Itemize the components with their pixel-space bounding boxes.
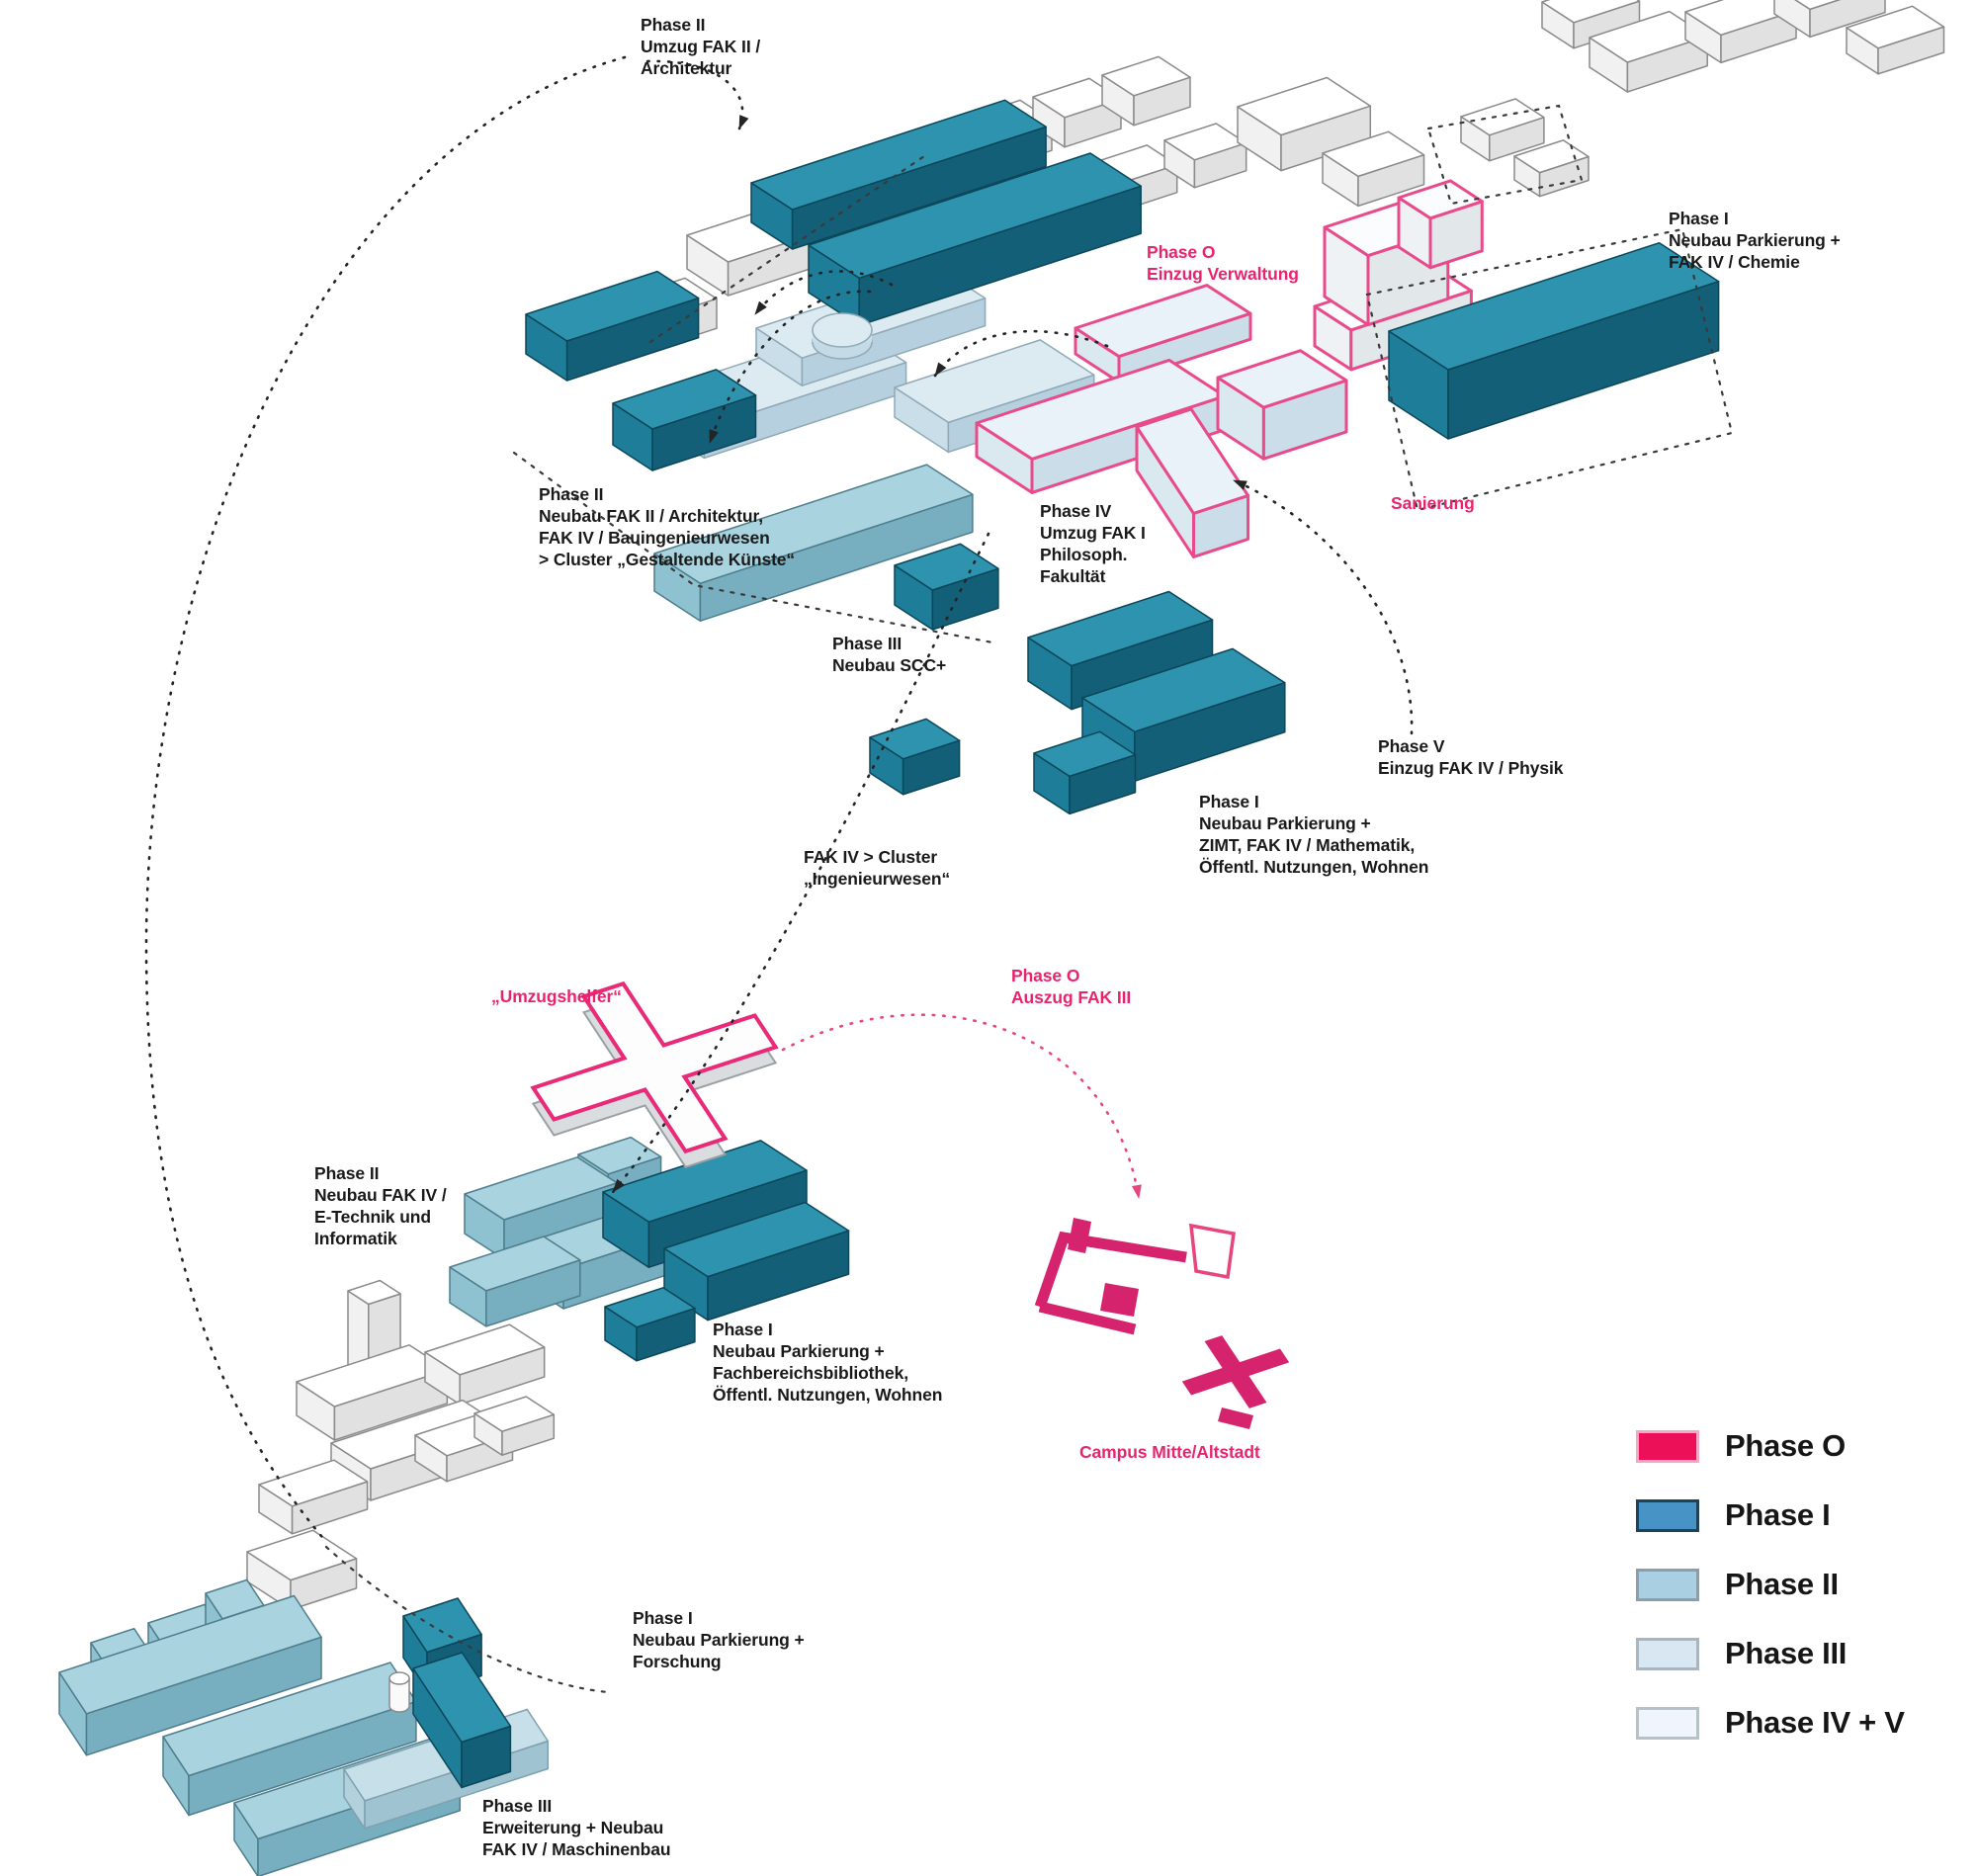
legend-swatch-phase-4-5 (1636, 1707, 1699, 1740)
legend-item-phase-4-5: Phase IV + V (1636, 1688, 1905, 1757)
annotation-phase1-zimt: Phase I Neubau Parkierung + ZIMT, FAK IV… (1199, 791, 1428, 878)
legend-label: Phase O (1725, 1428, 1846, 1464)
legend-item-phase-o: Phase O (1636, 1411, 1905, 1481)
annotation-phase1-chemie: Phase I Neubau Parkierung + FAK IV / Che… (1669, 208, 1841, 273)
annotation-phase2-neubau: Phase II Neubau FAK II / Architektur, FA… (539, 483, 795, 570)
annotation-phase3-scc: Phase III Neubau SCC+ (832, 633, 946, 676)
annotation-phase5: Phase V Einzug FAK IV / Physik (1378, 735, 1563, 779)
annotation-phase1-forschung: Phase I Neubau Parkierung + Forschung (633, 1607, 805, 1672)
legend-label: Phase IV + V (1725, 1705, 1905, 1741)
legend-swatch-phase-3 (1636, 1638, 1699, 1670)
legend-label: Phase II (1725, 1567, 1839, 1602)
annotation-phase0-einzug: Phase O Einzug Verwaltung (1147, 241, 1299, 285)
legend-item-phase-3: Phase III (1636, 1619, 1905, 1688)
legend-item-phase-1: Phase I (1636, 1481, 1905, 1550)
annotation-sanierung: Sanierung (1391, 492, 1475, 514)
phase0-arrow (783, 1015, 1139, 1198)
annotation-fak4-cluster: FAK IV > Cluster „Ingenieurwesen“ (804, 846, 950, 890)
legend-label: Phase III (1725, 1636, 1847, 1671)
legend-item-phase-2: Phase II (1636, 1550, 1905, 1619)
round-building (813, 313, 872, 359)
annotation-phase4-umzug: Phase IV Umzug FAK I Philosoph. Fakultät (1040, 500, 1146, 587)
annotation-campus-mitte: Campus Mitte/Altstadt (1079, 1441, 1260, 1463)
legend-swatch-phase-o (1636, 1430, 1699, 1463)
campus-mitte-buildings (1040, 1218, 1307, 1429)
legend-swatch-phase-1 (1636, 1499, 1699, 1532)
annotation-phase2-etechnik: Phase II Neubau FAK IV / E-Technik und I… (314, 1162, 447, 1249)
annotation-umzugshelfer: „Umzugshelfer“ (491, 985, 622, 1007)
annotation-phase0-auszug: Phase O Auszug FAK III (1011, 965, 1131, 1008)
arrow-auszug-fak3 (783, 1015, 1139, 1198)
legend-label: Phase I (1725, 1497, 1830, 1533)
legend: Phase O Phase I Phase II Phase III Phase… (1636, 1411, 1905, 1757)
annotation-phase2-umzug: Phase II Umzug FAK II / Architektur (641, 14, 760, 79)
annotation-phase3-maschinen: Phase III Erweiterung + Neubau FAK IV / … (482, 1795, 670, 1860)
small-cylinder-building (389, 1672, 409, 1712)
campus-phasing-diagram: Phase II Umzug FAK II / Architektur Phas… (0, 0, 1977, 1876)
legend-swatch-phase-2 (1636, 1569, 1699, 1601)
annotation-phase1-bibliothek: Phase I Neubau Parkierung + Fachbereichs… (713, 1319, 942, 1406)
